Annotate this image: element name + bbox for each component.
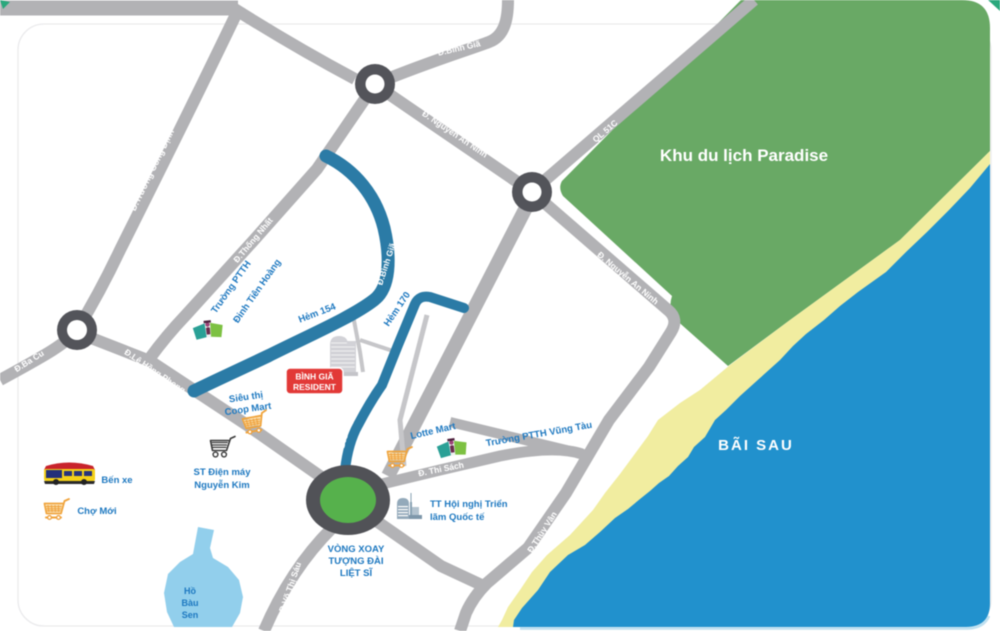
svg-text:Sen: Sen (182, 610, 199, 620)
svg-text:Bến xe: Bến xe (101, 475, 132, 486)
svg-text:BÌNH GIÃ: BÌNH GIÃ (295, 372, 333, 382)
svg-text:Bàu: Bàu (181, 598, 198, 608)
svg-text:RESIDENT: RESIDENT (293, 382, 337, 392)
svg-text:TƯỢNG ĐÀI: TƯỢNG ĐÀI (328, 556, 383, 567)
svg-text:lãm Quốc tế: lãm Quốc tế (430, 512, 485, 523)
svg-text:Hồ: Hồ (184, 586, 196, 596)
svg-text:BÃI SAU: BÃI SAU (718, 436, 794, 454)
svg-text:TT Hội nghị Triển: TT Hội nghị Triển (430, 499, 508, 510)
svg-text:LIỆT SĨ: LIỆT SĨ (340, 567, 374, 579)
svg-text:Chợ Mới: Chợ Mới (77, 506, 116, 517)
svg-text:ST Điện máy: ST Điện máy (193, 467, 251, 478)
svg-text:VÒNG XOAY: VÒNG XOAY (328, 543, 385, 555)
svg-text:Nguyễn Kim: Nguyễn Kim (194, 480, 249, 491)
svg-text:Khu du lịch Paradise: Khu du lịch Paradise (660, 146, 828, 165)
